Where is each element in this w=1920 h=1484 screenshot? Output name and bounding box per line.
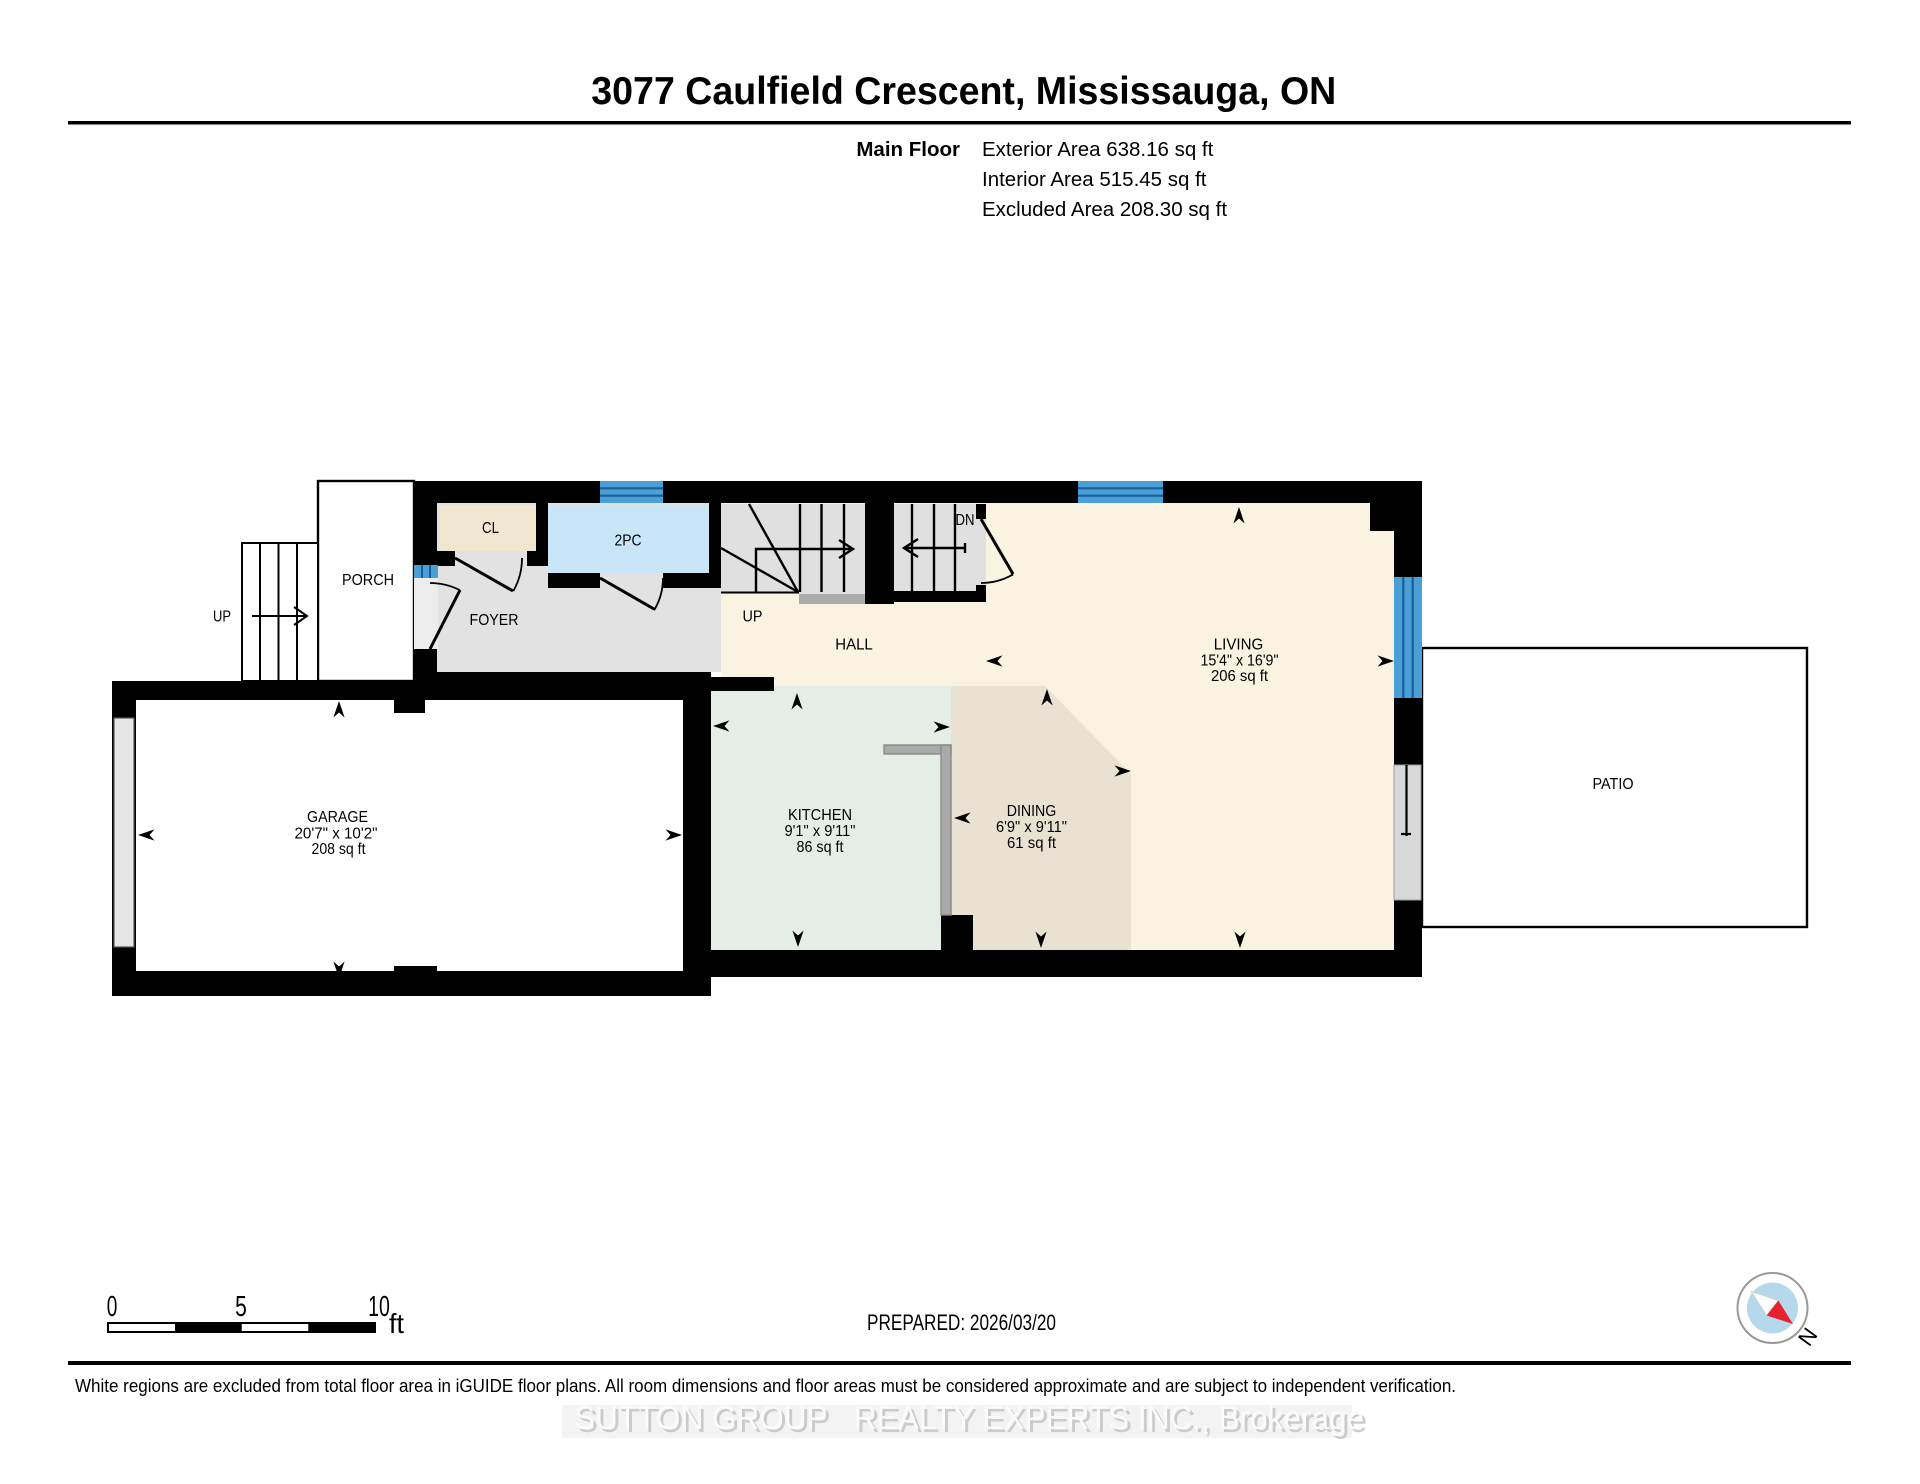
svg-text:Exterior Area 638.16 sq ft: Exterior Area 638.16 sq ft xyxy=(982,138,1214,161)
svg-text:ft: ft xyxy=(389,1308,404,1339)
svg-text:Interior Area 515.45 sq ft: Interior Area 515.45 sq ft xyxy=(982,168,1207,191)
svg-text:0: 0 xyxy=(107,1291,118,1323)
svg-text:LIVING: LIVING xyxy=(1214,637,1264,654)
svg-text:GARAGE: GARAGE xyxy=(307,809,368,826)
svg-text:3077 Caulfield Crescent, Missi: 3077 Caulfield Crescent, Mississauga, ON xyxy=(591,70,1336,113)
svg-text:208 sq ft: 208 sq ft xyxy=(312,841,366,858)
svg-text:86 sq ft: 86 sq ft xyxy=(797,839,844,856)
svg-text:Main Floor: Main Floor xyxy=(856,138,960,161)
svg-text:DINING: DINING xyxy=(1007,803,1057,820)
svg-text:Excluded Area 208.30 sq ft: Excluded Area 208.30 sq ft xyxy=(982,198,1227,221)
svg-text:206 sq ft: 206 sq ft xyxy=(1211,668,1269,685)
svg-text:FOYER: FOYER xyxy=(470,612,519,629)
svg-text:PREPARED: 2026/03/20: PREPARED: 2026/03/20 xyxy=(867,1310,1056,1335)
svg-text:CL: CL xyxy=(482,520,499,537)
svg-text:20'7" x 10'2": 20'7" x 10'2" xyxy=(295,826,378,843)
svg-text:KITCHEN: KITCHEN xyxy=(788,807,852,824)
svg-text:61 sq ft: 61 sq ft xyxy=(1007,835,1057,852)
svg-text:HALL: HALL xyxy=(835,637,873,654)
svg-text:10: 10 xyxy=(368,1291,390,1323)
svg-text:PORCH: PORCH xyxy=(342,572,394,589)
svg-text:2PC: 2PC xyxy=(615,533,642,550)
svg-text:DN: DN xyxy=(956,512,975,529)
svg-text:UP: UP xyxy=(743,609,763,626)
svg-text:UP: UP xyxy=(213,609,231,626)
svg-text:White regions are excluded fro: White regions are excluded from total fl… xyxy=(75,1375,1456,1396)
svg-text:9'1" x 9'11": 9'1" x 9'11" xyxy=(785,823,856,840)
svg-text:PATIO: PATIO xyxy=(1593,776,1634,793)
svg-text:SUTTON GROUP REALTY EXPERTS: SUTTON GROUP REALTY EXPERTS INC., Broker… xyxy=(574,1399,1364,1436)
svg-text:5: 5 xyxy=(235,1291,247,1323)
svg-text:15'4" x 16'9": 15'4" x 16'9" xyxy=(1201,653,1279,670)
svg-text:6'9" x 9'11": 6'9" x 9'11" xyxy=(996,819,1067,836)
